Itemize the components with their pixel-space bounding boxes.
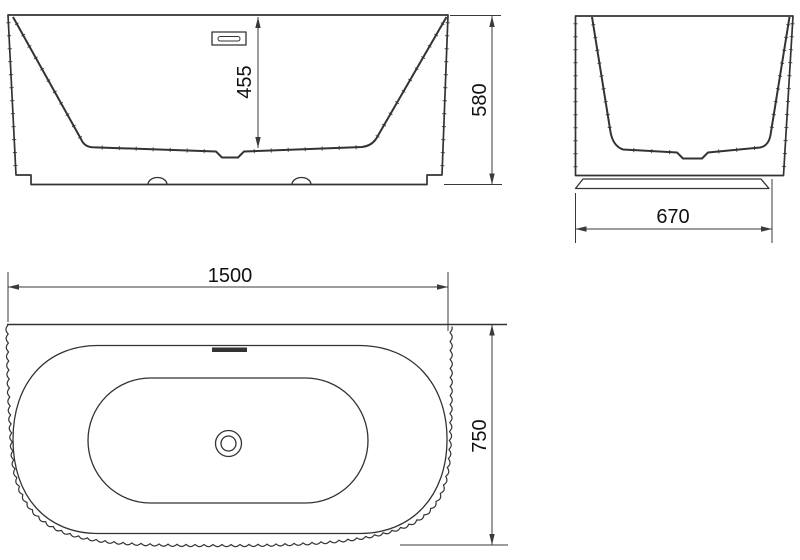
hatch-tick — [591, 24, 595, 25]
hatch-tick — [606, 114, 610, 115]
hatch-tick — [599, 76, 603, 77]
dimension-arrowhead — [489, 174, 494, 185]
dim-label-inner-depth: 455 — [234, 65, 256, 98]
dimension-arrowhead — [255, 17, 260, 28]
drain-inner — [221, 436, 236, 451]
front-inner-bowl — [13, 17, 447, 158]
hatch-tick — [597, 63, 601, 64]
dimension-arrowhead — [489, 16, 494, 27]
hatch-tick — [786, 24, 790, 25]
side-outer-shell — [576, 16, 794, 176]
dim-label-overall-length: 1500 — [208, 265, 253, 287]
hatch-tick — [780, 63, 784, 64]
overflow-front-slot — [218, 37, 240, 42]
front-base-recess-right — [292, 178, 311, 185]
hatch-tick — [602, 89, 606, 90]
overflow-front — [212, 32, 246, 45]
hatch-tick — [593, 37, 597, 38]
side-inner-bowl — [592, 17, 790, 159]
dimensions: 455 580 670 1500 750 — [8, 16, 772, 546]
dim-label-overall-width: 670 — [656, 206, 689, 228]
side-base-plinth — [576, 179, 770, 189]
dimension-arrowhead — [489, 534, 494, 545]
side-view — [576, 16, 794, 189]
dimension-arrowhead — [576, 226, 587, 231]
drawing-page: 455 580 670 1500 750 — [0, 0, 800, 560]
hatch-tick — [770, 127, 774, 128]
plan-view — [6, 325, 507, 547]
front-view — [8, 15, 448, 185]
hatch-tick — [782, 50, 786, 51]
dimension-arrowhead — [489, 325, 494, 336]
hatch-tick — [595, 50, 599, 51]
dim-label-overall-depth: 750 — [469, 419, 491, 452]
hatch-tick — [608, 127, 612, 128]
overflow-plan-mark — [212, 348, 247, 353]
dimension-arrowhead — [8, 284, 19, 289]
hatch-tick — [774, 101, 778, 102]
dim-label-overall-height: 580 — [469, 83, 491, 116]
hatch-tick — [719, 149, 720, 153]
bathtub-technical-drawing: 455 580 670 1500 750 — [0, 0, 800, 560]
dimension-arrowheads — [8, 16, 772, 545]
drain-outer — [216, 431, 242, 457]
dimension-arrowhead — [255, 137, 260, 148]
front-outer-shell — [8, 15, 448, 185]
front-base-recess-left — [148, 178, 167, 185]
plan-basin — [88, 378, 368, 503]
dimension-arrowhead — [761, 226, 772, 231]
hatch-tick — [772, 114, 776, 115]
hatch-tick — [604, 101, 608, 102]
hatch-tick — [778, 76, 782, 77]
hatch-tick — [776, 89, 780, 90]
plan-rim — [13, 346, 447, 534]
dimension-arrowhead — [437, 284, 448, 289]
hatch-tick — [784, 37, 788, 38]
